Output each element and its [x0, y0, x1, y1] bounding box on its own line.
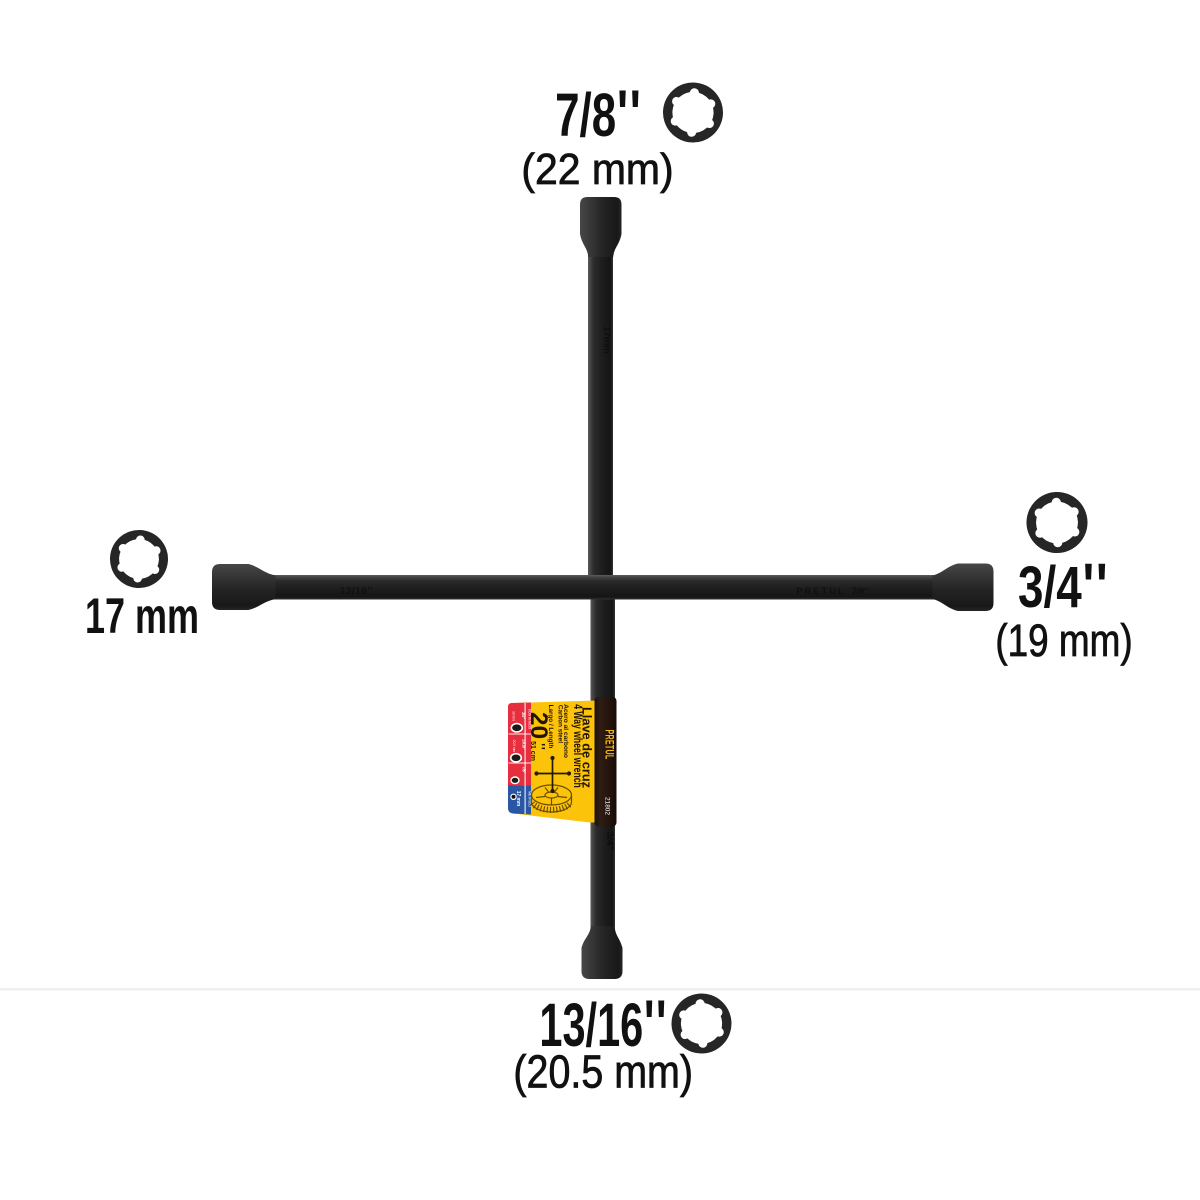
svg-text:20: 20: [525, 712, 552, 739]
svg-text:(19 mm): (19 mm): [995, 616, 1132, 666]
svg-text:20.5 mm: 20.5 mm: [512, 740, 516, 753]
svg-text:19 mm: 19 mm: [512, 711, 516, 721]
svg-text:PRETUL: PRETUL: [602, 730, 615, 760]
svg-text:17 mm: 17 mm: [85, 589, 199, 644]
svg-text:7/8'': 7/8'': [555, 77, 641, 150]
svg-text:21802: 21802: [603, 797, 610, 815]
svg-text:3/4'': 3/4'': [1018, 552, 1108, 622]
svg-text:PRETUL: PRETUL: [796, 586, 845, 596]
svg-text:3/4'': 3/4'': [604, 832, 615, 851]
svg-text:13/16'': 13/16'': [340, 586, 373, 597]
svg-text:7/8'': 7/8'': [521, 767, 527, 774]
svg-text:13/16'': 13/16'': [521, 739, 527, 750]
svg-text:(22 mm): (22 mm): [521, 146, 673, 195]
svg-text:(20.5 mm): (20.5 mm): [513, 1047, 693, 1099]
svg-text:Carbon steel: Carbon steel: [556, 705, 563, 743]
svg-text:4 Way wheel wrench: 4 Way wheel wrench: [571, 704, 584, 788]
svg-text:51 cm: 51 cm: [529, 741, 536, 761]
svg-text:7/8'': 7/8'': [852, 586, 869, 596]
svg-text:17mm: 17mm: [601, 326, 612, 353]
svg-text:17 mm: 17 mm: [515, 791, 521, 807]
